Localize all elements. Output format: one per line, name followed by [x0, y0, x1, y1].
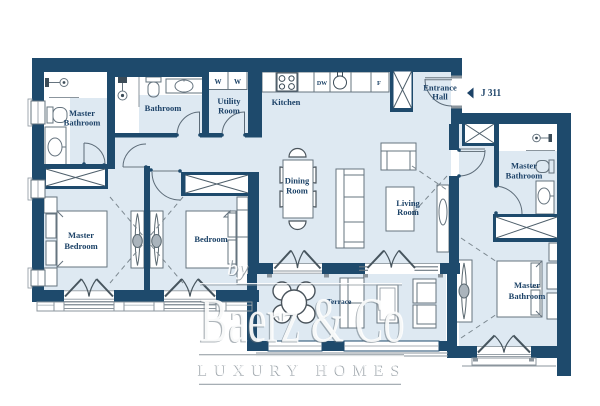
svg-text:Room: Room	[397, 207, 419, 217]
svg-text:Master: Master	[514, 280, 540, 290]
svg-text:LUXURY HOMES: LUXURY HOMES	[197, 363, 399, 380]
svg-text:Master: Master	[68, 230, 94, 240]
svg-text:Bedroom: Bedroom	[194, 234, 227, 244]
svg-text:W: W	[215, 78, 222, 86]
svg-text:W: W	[234, 78, 241, 86]
svg-text:J 311: J 311	[481, 88, 501, 99]
svg-text:Baerz & Co: Baerz & Co	[200, 285, 405, 356]
svg-text:Master: Master	[511, 161, 537, 171]
svg-text:DW: DW	[317, 81, 327, 87]
svg-text:Bathroom: Bathroom	[64, 118, 101, 128]
svg-text:Room: Room	[218, 106, 240, 116]
svg-text:F: F	[377, 80, 381, 87]
svg-text:Kitchen: Kitchen	[272, 97, 301, 107]
svg-text:Bathroom: Bathroom	[509, 291, 546, 301]
svg-text:Master: Master	[69, 108, 95, 118]
svg-text:Hall: Hall	[432, 92, 448, 102]
svg-text:Utility: Utility	[217, 96, 241, 106]
svg-text:Room: Room	[286, 186, 308, 196]
svg-text:Dining: Dining	[285, 176, 310, 186]
svg-text:Bedroom: Bedroom	[64, 241, 97, 251]
svg-text:LUXURY HOMES: LUXURY HOMES	[198, 362, 400, 379]
svg-text:by: by	[227, 255, 248, 280]
svg-text:Bathroom: Bathroom	[145, 103, 182, 113]
svg-text:Bathroom: Bathroom	[506, 171, 543, 181]
